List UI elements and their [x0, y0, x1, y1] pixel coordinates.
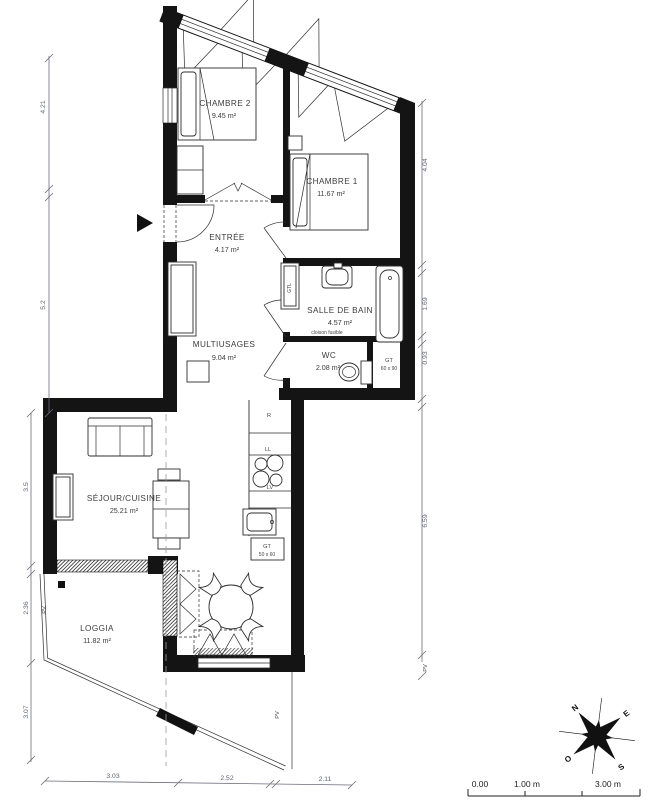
- dim-left-0: 4.21: [40, 100, 47, 113]
- room-area: 11.67 m²: [317, 189, 345, 198]
- room-entree: ENTRÉE 4.17 m²: [209, 232, 245, 254]
- wall-sdb-top: [283, 258, 413, 266]
- room-label: ENTRÉE: [209, 232, 245, 242]
- wall-left-top-b: [163, 123, 177, 205]
- wc-door: [264, 343, 286, 380]
- gt-kitchen-label: GT: [263, 544, 271, 550]
- double-door-leaf-b: [241, 183, 271, 200]
- dim-left-2: 3.5: [23, 482, 30, 492]
- sliding-door-sejour: [57, 560, 148, 572]
- accordion-door-1: [180, 574, 196, 604]
- wall-sejour-top: [43, 398, 177, 412]
- room-wc: WC 2.08 m² GT 60 x 90: [316, 351, 398, 384]
- window-left: [163, 88, 177, 123]
- scale-label-0: 0.00: [472, 779, 489, 789]
- wall-terrace-divider-cap: [163, 634, 177, 658]
- double-door-v: [234, 183, 242, 191]
- bathtub-inner: [380, 270, 399, 338]
- scale-label-3: 3.00 m: [595, 779, 621, 789]
- dim-left-4: 3.07: [23, 705, 30, 718]
- dining-table-icon: [153, 481, 189, 538]
- room-area: 9.45 m²: [212, 111, 237, 120]
- compass-star-major: [555, 694, 639, 778]
- floor-plan-page: CHAMBRE 2 9.45 m² CHAMBRE 1 11.67 m² ENT…: [0, 0, 651, 800]
- compass-north: N: [570, 703, 580, 714]
- cloison-fusible-label: cloison fusible: [311, 330, 343, 336]
- room-area: 9.04 m²: [212, 353, 237, 362]
- washing-machine-label: LL: [265, 447, 271, 453]
- room-salle-de-bain: GTL SALLE DE BAIN 4.57 m² cloison fusibl…: [281, 263, 403, 342]
- pv-label-right: PV: [423, 664, 429, 672]
- wall-right: [400, 97, 415, 400]
- compass-west: O: [563, 754, 573, 765]
- wall-terrace-right: [291, 398, 304, 672]
- column-marker: [58, 581, 65, 588]
- scale-label-1: 1.00 m: [514, 779, 540, 789]
- accordion-door-2: [180, 604, 196, 634]
- scale-bar-ticks: [468, 789, 640, 796]
- room-area: 2.08 m²: [316, 363, 341, 372]
- dim-right-0: 4.04: [422, 158, 429, 171]
- sink-bowl: [247, 513, 272, 531]
- room-label: MULTIUSAGES: [193, 340, 256, 349]
- toilet-tank: [361, 361, 372, 384]
- compass-east: E: [622, 708, 632, 719]
- gt-wc-size: 60 x 90: [381, 366, 398, 372]
- room-multiusages: MULTIUSAGES 9.04 m²: [168, 262, 255, 382]
- room-label: SALLE DE BAIN: [307, 306, 373, 315]
- entrance-arrow-icon: [137, 214, 153, 232]
- glazed-terrace-divider: [163, 560, 177, 636]
- compass-rose-icon: N E S O: [541, 680, 651, 796]
- dim-bottom-1: 2.52: [220, 775, 233, 782]
- toilet-icon: [339, 363, 359, 381]
- burner-icon-2: [267, 455, 283, 471]
- floor-plan-drawing: CHAMBRE 2 9.45 m² CHAMBRE 1 11.67 m² ENT…: [0, 0, 651, 800]
- gt-kitchen-size: 50 x 60: [259, 552, 276, 558]
- doors: [137, 183, 286, 380]
- pv-label-left: PV: [42, 606, 48, 614]
- chair-bottom-icon: [158, 538, 180, 549]
- dim-left-3: 2.36: [23, 601, 30, 614]
- chambre1-door: [264, 222, 286, 258]
- dim-line-bottom: [45, 781, 352, 785]
- double-door-leaf-a: [205, 183, 235, 200]
- chair-top-icon: [158, 469, 180, 480]
- room-area: 4.57 m²: [328, 318, 353, 327]
- desk-icon: [187, 361, 209, 382]
- burner-icon-1: [255, 458, 267, 470]
- room-chambre1: CHAMBRE 1 11.67 m²: [288, 136, 368, 230]
- dim-right-2: 0.93: [422, 351, 429, 364]
- compass-south: S: [616, 762, 626, 773]
- wall-sdb-left-b: [283, 332, 290, 342]
- scale-bar: 0.00 1.00 m 3.00 m: [468, 779, 640, 796]
- gtl-label: GTL: [287, 283, 293, 293]
- room-area: 11.82 m²: [83, 636, 111, 645]
- dim-right-1: 1.69: [422, 297, 429, 310]
- dishwasher-label: LV: [267, 485, 274, 491]
- room-label: WC: [322, 351, 336, 360]
- dim-left-1: 5.2: [40, 300, 47, 310]
- wall-chambres-bottom-left: [163, 195, 205, 203]
- loggia-rail-post: [158, 712, 196, 731]
- nightstand-icon: [288, 136, 302, 150]
- room-label: SÉJOUR/CUISINE: [87, 493, 161, 503]
- dim-bottom-2: 2.11: [319, 776, 332, 783]
- wall-chambre1-left: [283, 203, 290, 227]
- washbasin-bowl: [326, 269, 348, 285]
- gt-wc-label: GT: [385, 358, 393, 364]
- wall-chambre-divider: [283, 57, 290, 203]
- wardrobe-inner: [171, 265, 193, 333]
- room-chambre2: CHAMBRE 2 9.45 m²: [177, 68, 256, 194]
- fridge-label: R: [267, 413, 271, 419]
- room-area: 4.17 m²: [215, 245, 240, 254]
- console-inner: [56, 477, 70, 517]
- dim-bottom-0: 3.03: [106, 773, 119, 780]
- washbasin-faucet: [334, 263, 342, 268]
- dim-right-3: 6.59: [422, 514, 429, 527]
- pv-label-bottom: PV: [275, 711, 281, 719]
- room-label: CHAMBRE 2: [199, 99, 250, 108]
- pillow-icon: [293, 158, 307, 226]
- room-label: LOGGIA: [80, 624, 114, 633]
- room-area: 25.21 m²: [110, 506, 139, 515]
- pillow-icon: [181, 72, 196, 136]
- room-label: CHAMBRE 1: [306, 177, 357, 186]
